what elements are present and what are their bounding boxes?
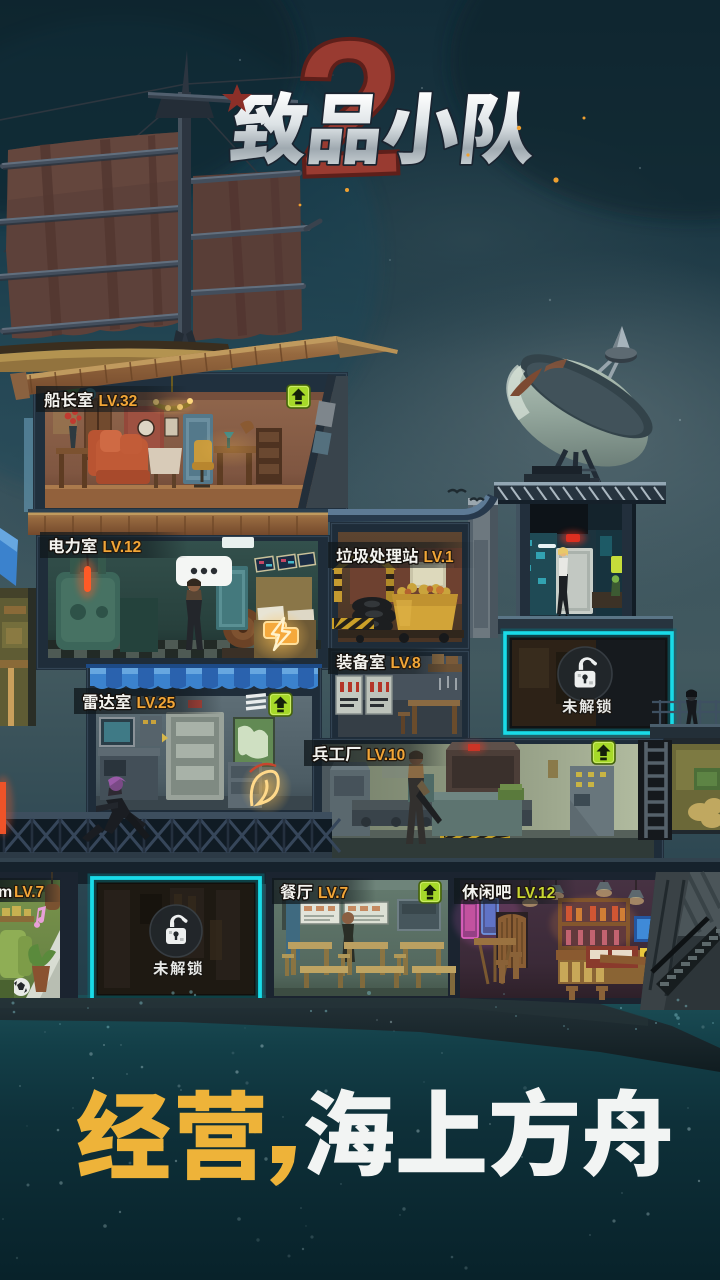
svg-text:LV.12: LV.12 <box>517 885 556 902</box>
svg-text:LV.10: LV.10 <box>367 747 406 764</box>
svg-text:LV.8: LV.8 <box>391 655 422 672</box>
svg-text:LV.32: LV.32 <box>99 393 138 410</box>
svg-text:LV.7: LV.7 <box>14 884 44 901</box>
svg-text:LV.7: LV.7 <box>318 885 348 902</box>
svg-text:2: 2 <box>292 0 408 219</box>
svg-text:LV.12: LV.12 <box>103 539 142 556</box>
svg-text:LV.25: LV.25 <box>137 695 176 712</box>
svg-text:m: m <box>0 884 12 901</box>
svg-text:LV.1: LV.1 <box>424 549 455 566</box>
